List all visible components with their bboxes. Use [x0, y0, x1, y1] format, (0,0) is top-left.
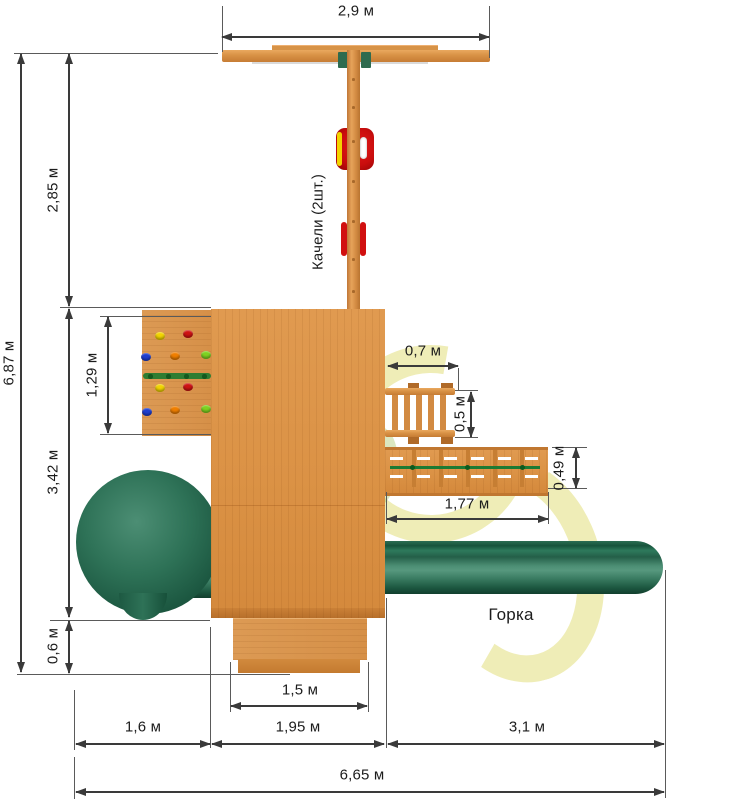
- swing-seat-side-left: [341, 222, 347, 256]
- dimension-line-ladder-wid: [470, 392, 472, 437]
- platform-step-lower: [238, 659, 360, 673]
- dimension-line-steps-wid: [231, 705, 367, 707]
- ladder-post-3: [408, 437, 419, 444]
- dimension-label-ladder-len: 0,7 м: [405, 343, 441, 360]
- dimension-line-total-width: [76, 791, 664, 793]
- extension-line: [458, 368, 459, 390]
- dimension-line-bridge-len: [387, 518, 548, 520]
- bridge-slats-top: [390, 457, 542, 460]
- ladder-post-4: [441, 437, 453, 444]
- dimension-label-bottom-right: 3,1 м: [509, 719, 545, 736]
- straight-slide: [385, 541, 663, 594]
- extension-line: [368, 662, 369, 712]
- bar-knob: [202, 374, 207, 379]
- swing-seat-handle: [360, 137, 367, 159]
- extension-line: [210, 627, 211, 748]
- extension-line: [14, 53, 218, 54]
- dimension-label-climb-wall: 1,29 м: [84, 353, 101, 398]
- ladder-rung-3: [416, 395, 422, 430]
- bar-knob: [148, 374, 153, 379]
- climbing-hold: [142, 408, 152, 416]
- extension-line: [222, 6, 223, 52]
- dimension-label-steps-wid: 1,5 м: [282, 682, 318, 699]
- dimension-line-total-height: [20, 54, 22, 672]
- platform-bottom-edge: [211, 608, 385, 618]
- slide-label: Горка: [488, 605, 533, 625]
- extension-line: [60, 307, 211, 308]
- post-screw: [352, 78, 355, 81]
- swing-seat-edge: [337, 132, 342, 166]
- climbing-hold: [201, 405, 211, 413]
- climbing-hold: [155, 332, 165, 340]
- dimension-line-climb-wall: [107, 317, 109, 433]
- dimension-line-left-mid: [68, 309, 70, 617]
- swing-bracket-right-icon: [361, 52, 371, 68]
- post-screw: [352, 180, 355, 183]
- climbing-hold: [155, 384, 165, 392]
- dimension-label-bridge-wid: 0,49 м: [551, 446, 568, 491]
- dimension-label-left-mid: 3,42 м: [45, 450, 62, 495]
- main-platform: [211, 309, 385, 618]
- post-screw: [352, 140, 355, 143]
- extension-line: [100, 434, 211, 435]
- post-screw: [352, 220, 355, 223]
- rope-knot: [520, 465, 525, 470]
- dimension-label-left-upper: 2,85 м: [45, 168, 62, 213]
- extension-line: [100, 316, 211, 317]
- extension-line: [386, 598, 387, 748]
- extension-line: [17, 674, 290, 675]
- bar-knob: [166, 374, 171, 379]
- ladder-rung-1: [392, 395, 398, 430]
- extension-line: [665, 570, 666, 798]
- ladder-rung-4: [428, 395, 434, 430]
- dimension-label-bridge-len: 1,77 м: [445, 496, 490, 513]
- ladder-rung-2: [404, 395, 410, 430]
- dimension-line-top-width: [222, 36, 489, 38]
- ladder-rail-top: [385, 388, 455, 395]
- platform-seam: [211, 505, 385, 506]
- swing-seat-side-right: [360, 222, 366, 256]
- climbing-hold: [201, 351, 211, 359]
- extension-line: [50, 620, 210, 621]
- bar-knob: [184, 374, 189, 379]
- bridge-slats-bottom: [390, 475, 542, 478]
- climbing-hold: [170, 352, 180, 360]
- climbing-hold: [183, 330, 193, 338]
- post-screw: [352, 258, 355, 261]
- dimension-label-bottom-mid: 1,95 м: [276, 719, 321, 736]
- dimension-line-left-upper: [68, 54, 70, 306]
- dimension-label-total-width: 6,65 м: [340, 767, 385, 784]
- dimension-label-top-width: 2,9 м: [338, 3, 374, 20]
- climbing-hold: [170, 406, 180, 414]
- blueprint-canvas: 2,9 м 6,87 м 2,85 м 3,42 м 0,6 м 1,29 м …: [0, 0, 729, 800]
- platform-step-upper: [233, 618, 367, 660]
- dimension-line-bottom-left: [76, 743, 210, 745]
- climbing-hold: [183, 383, 193, 391]
- climbing-wall-bar: [143, 373, 211, 379]
- post-screw: [352, 106, 355, 109]
- ladder-rung-5: [440, 395, 446, 430]
- rope-knot: [465, 465, 470, 470]
- dimension-label-total-height: 6,87 м: [1, 341, 18, 386]
- dimension-line-bottom-mid: [212, 743, 384, 745]
- dimension-line-bottom-right: [388, 743, 664, 745]
- ladder-rail-bottom: [385, 430, 455, 437]
- dimension-line-ladder-len: [388, 365, 458, 367]
- dimension-label-left-lower: 0,6 м: [45, 628, 62, 664]
- dimension-label-bottom-left: 1,6 м: [125, 719, 161, 736]
- dimension-label-ladder-wid: 0,5 м: [452, 396, 469, 432]
- climbing-hold: [141, 353, 151, 361]
- spiral-slide-exit: [119, 593, 167, 620]
- dimension-line-bridge-wid: [575, 448, 577, 488]
- dimension-line-left-lower: [68, 621, 70, 673]
- rope-knot: [410, 465, 415, 470]
- swings-label: Качели (2шт.): [310, 174, 327, 270]
- post-screw: [352, 290, 355, 293]
